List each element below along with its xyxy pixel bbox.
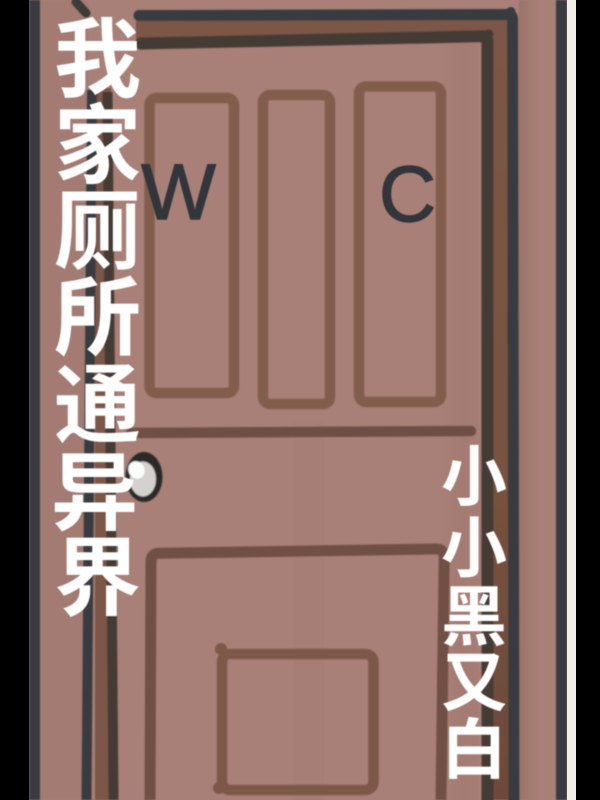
svg-text:W: W — [141, 147, 216, 236]
svg-text:C: C — [379, 149, 436, 238]
